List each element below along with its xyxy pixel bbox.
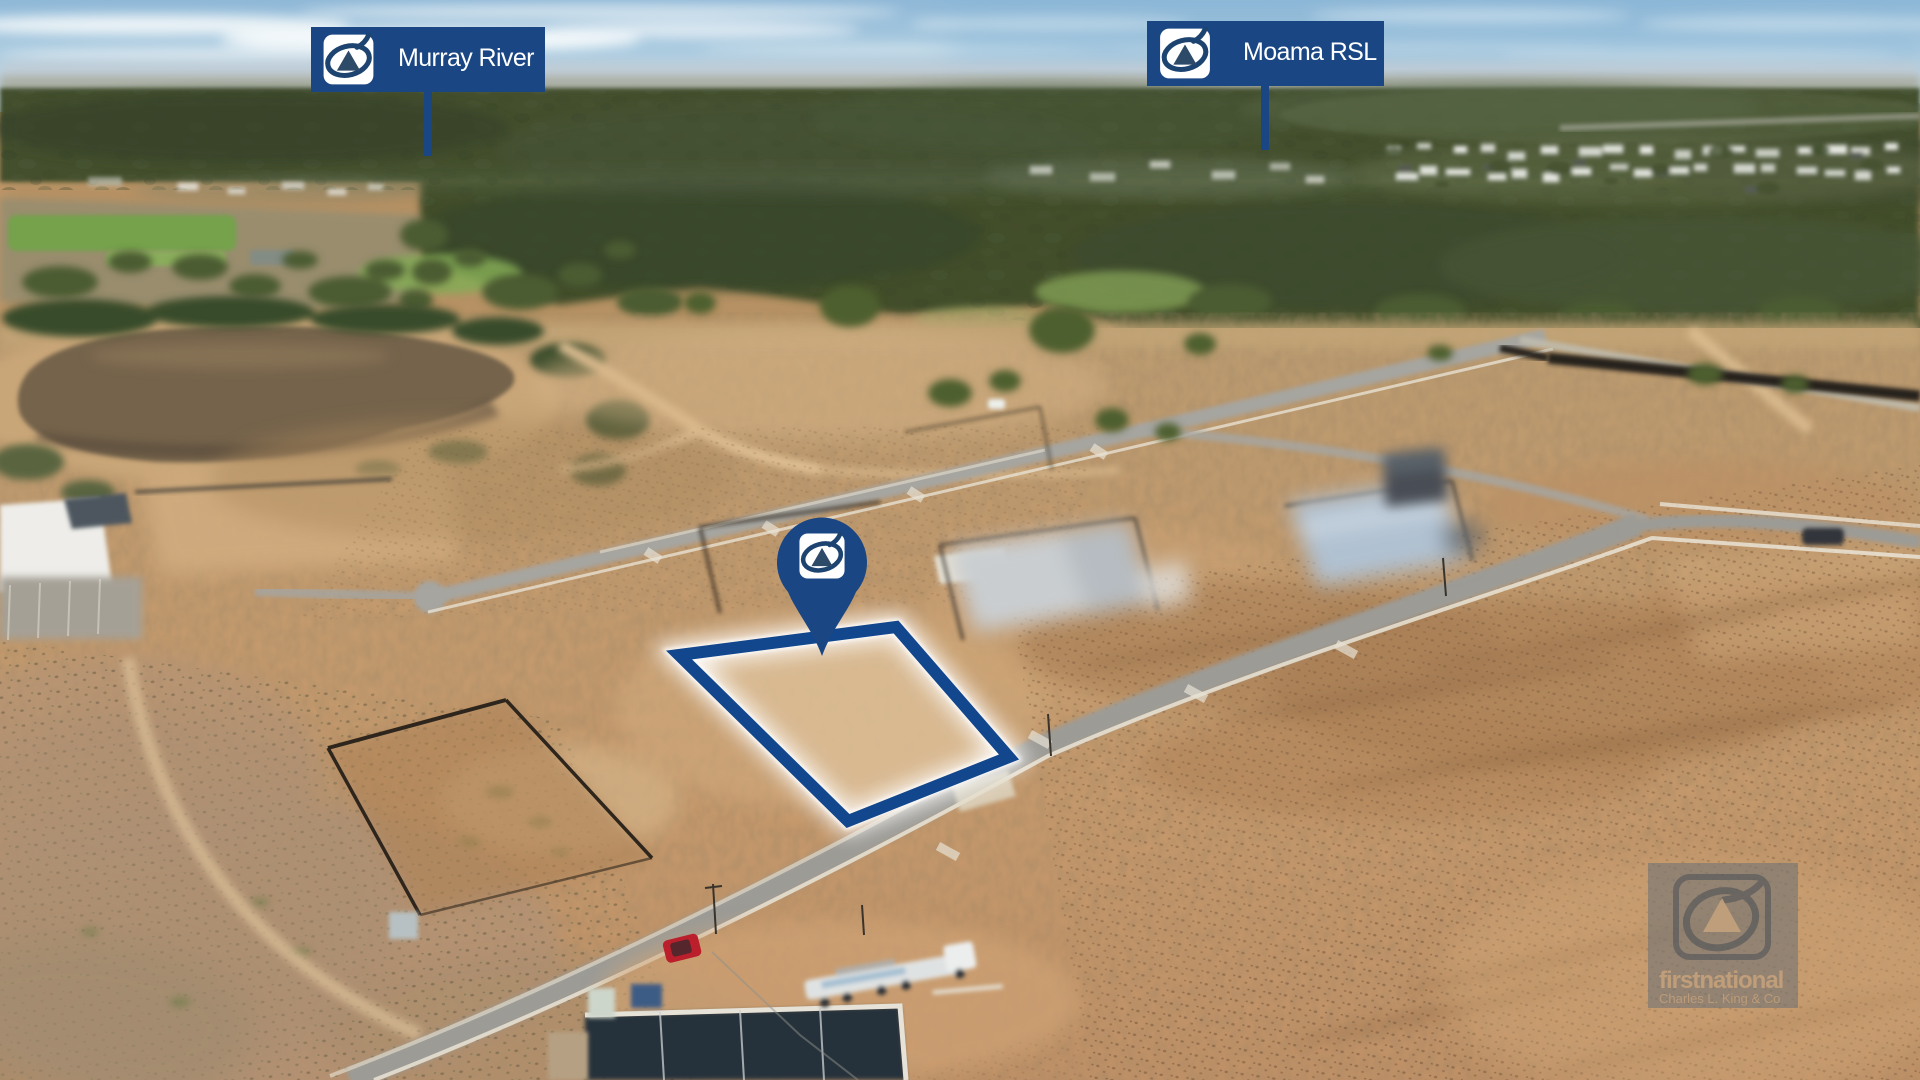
svg-text:firstnational: firstnational — [1659, 967, 1783, 994]
svg-text:Charles L. King & Co: Charles L. King & Co — [1659, 991, 1780, 1006]
svg-text:Murray River: Murray River — [398, 44, 534, 72]
svg-text:Moama RSL: Moama RSL — [1243, 38, 1377, 66]
